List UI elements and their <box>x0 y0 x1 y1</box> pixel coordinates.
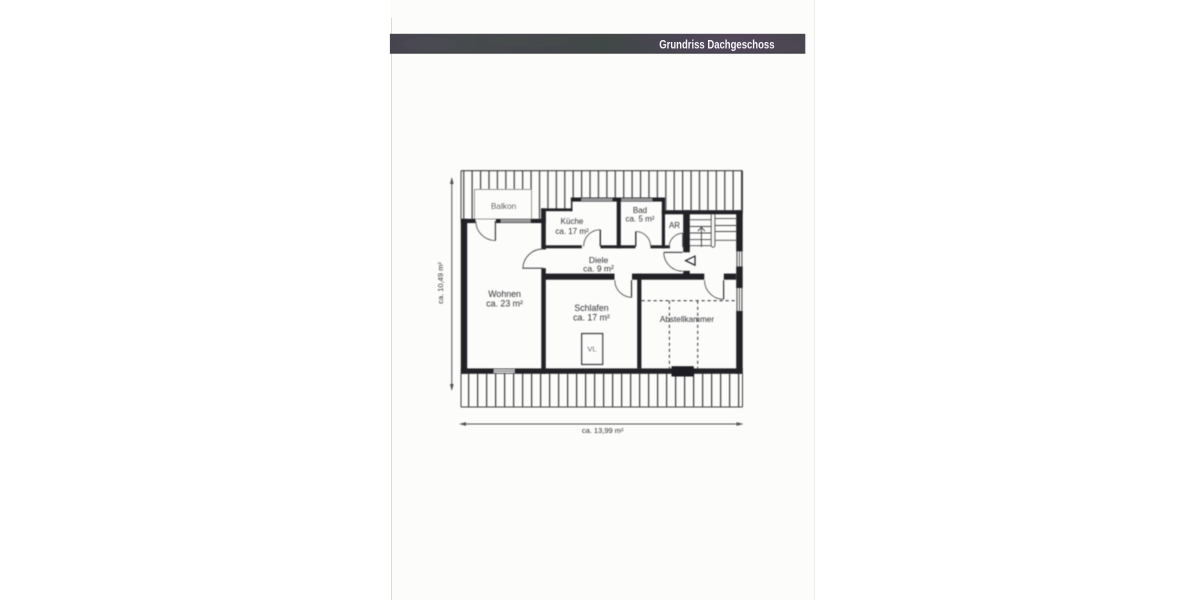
svg-text:Wohnen: Wohnen <box>488 289 521 299</box>
svg-text:Grundriss Dachgeschoss: Grundriss Dachgeschoss <box>659 38 774 51</box>
svg-text:ca. 9 m²: ca. 9 m² <box>583 264 614 274</box>
svg-text:ca. 13,99 m²: ca. 13,99 m² <box>582 426 624 435</box>
svg-text:AR: AR <box>669 221 680 230</box>
svg-text:ca. 23 m²: ca. 23 m² <box>486 299 523 309</box>
svg-text:ca. 17 m²: ca. 17 m² <box>555 227 589 236</box>
svg-text:ca. 5 m²: ca. 5 m² <box>626 215 655 224</box>
svg-text:VL: VL <box>587 344 596 353</box>
svg-text:ca. 17 m²: ca. 17 m² <box>573 312 610 322</box>
svg-text:ca. 10,49 m²: ca. 10,49 m² <box>436 262 445 304</box>
svg-text:Balkon: Balkon <box>491 201 517 211</box>
svg-text:Abstellkammer: Abstellkammer <box>660 315 714 324</box>
svg-text:Küche: Küche <box>561 217 584 226</box>
